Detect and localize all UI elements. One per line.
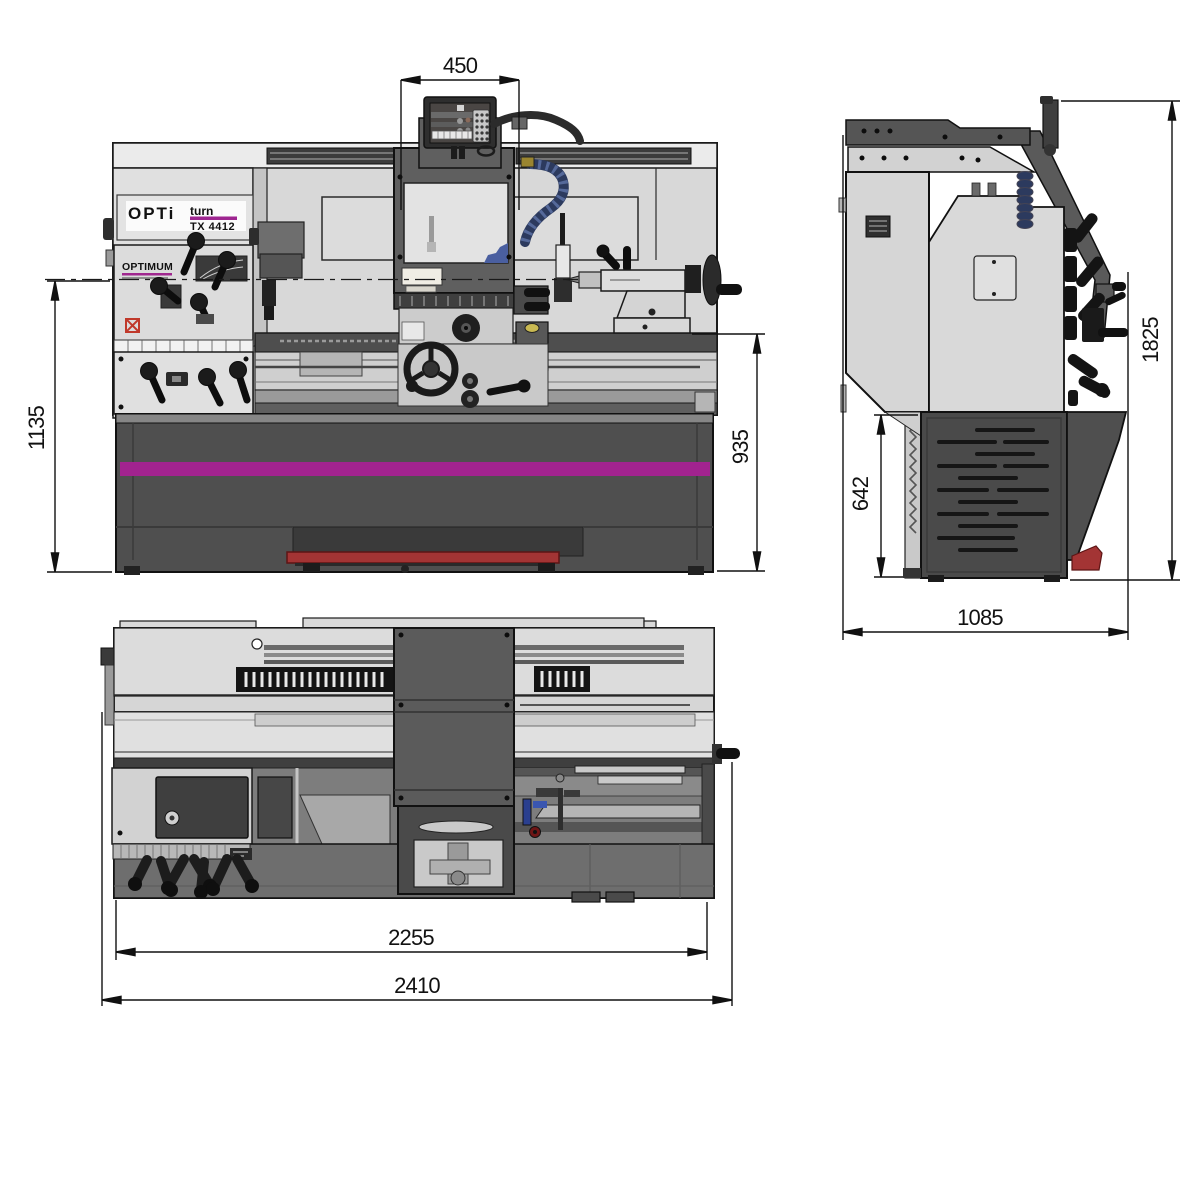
svg-text:2255: 2255 [388,925,434,950]
svg-text:1085: 1085 [957,605,1003,630]
svg-text:1825: 1825 [1138,317,1163,363]
svg-text:turn: turn [190,204,213,218]
svg-text:642: 642 [848,476,873,511]
svg-text:935: 935 [728,429,753,464]
svg-text:450: 450 [443,53,478,78]
svg-text:TX 4412: TX 4412 [190,221,235,233]
svg-text:2410: 2410 [394,973,440,998]
svg-text:OPTIMUM: OPTIMUM [122,261,173,273]
svg-text:1135: 1135 [24,405,49,450]
svg-text:OPTi: OPTi [128,204,175,223]
